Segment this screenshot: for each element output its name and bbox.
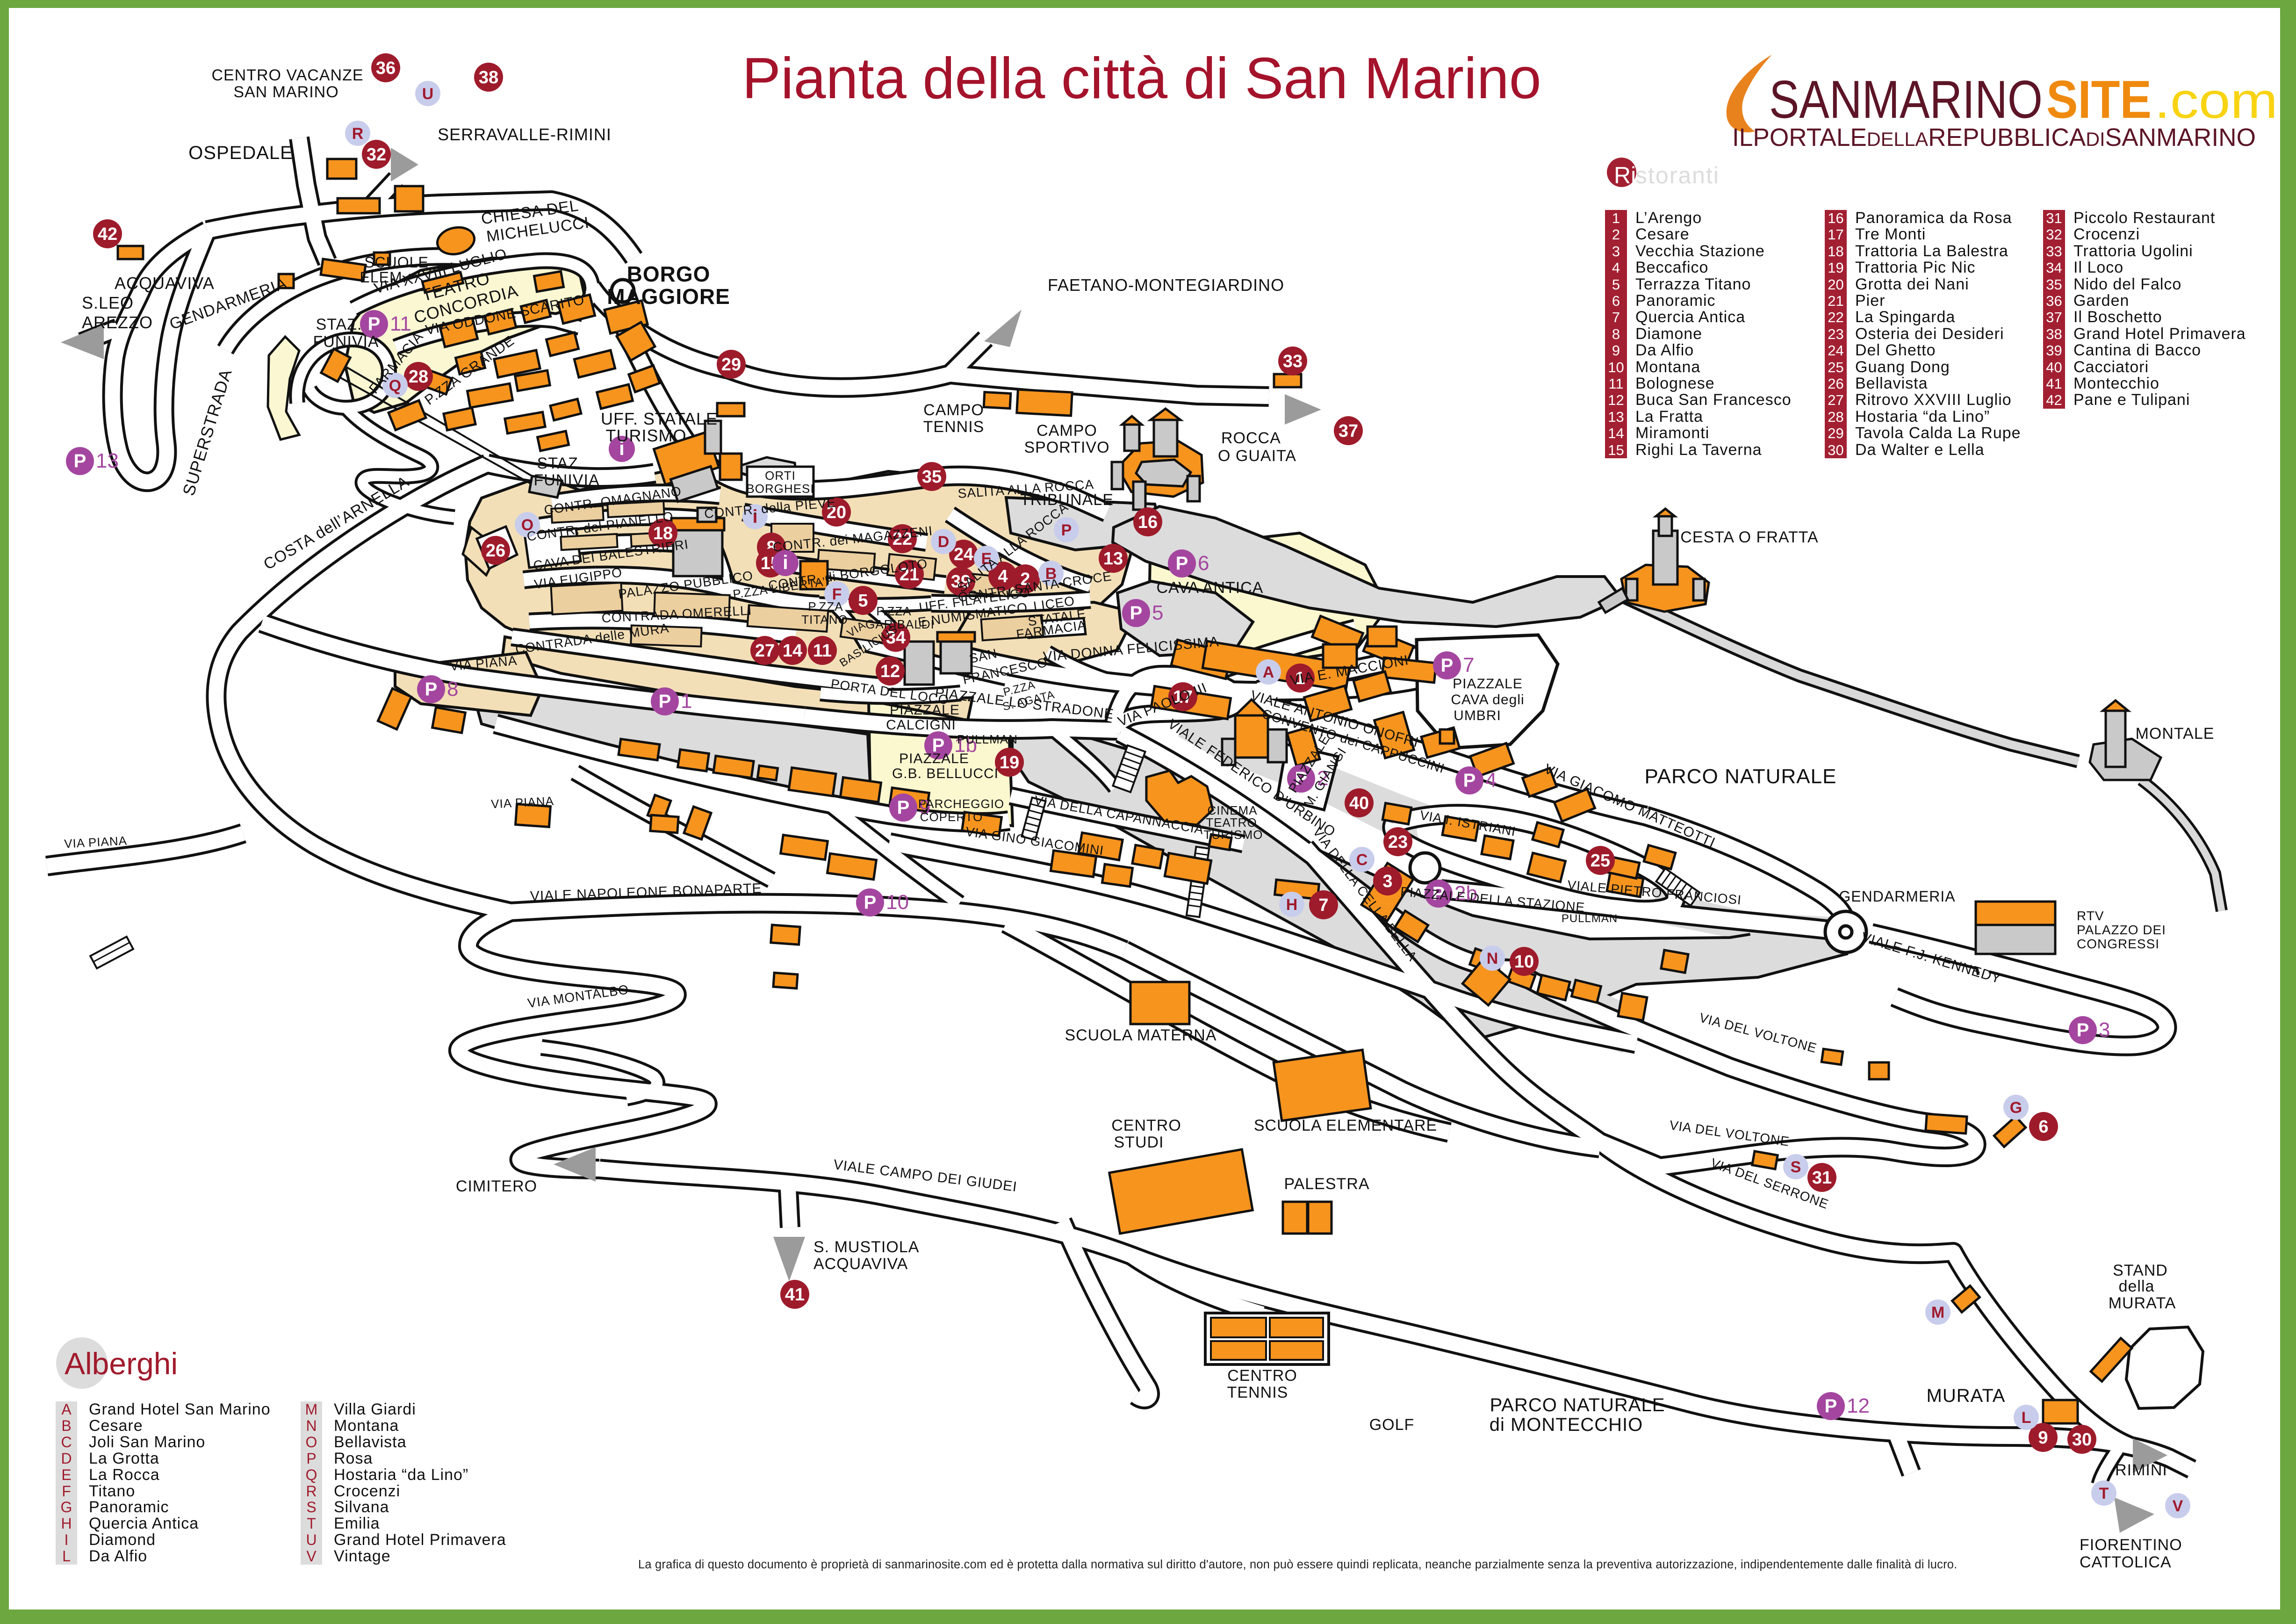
svg-text:SCUOLA MATERNA: SCUOLA MATERNA bbox=[1065, 1026, 1216, 1044]
svg-text:della: della bbox=[2119, 1278, 2155, 1295]
svg-text:G.B. BELLUCCI: G.B. BELLUCCI bbox=[892, 766, 999, 781]
svg-text:3: 3 bbox=[1382, 872, 1392, 891]
svg-text:14: 14 bbox=[783, 641, 802, 661]
svg-text:SCUOLA ELEMENTARE: SCUOLA ELEMENTARE bbox=[1254, 1117, 1437, 1134]
svg-text:A: A bbox=[1263, 664, 1274, 681]
svg-text:di MONTECCHIO: di MONTECCHIO bbox=[1490, 1415, 1643, 1435]
svg-text:37: 37 bbox=[1339, 421, 1358, 441]
svg-text:12: 12 bbox=[880, 662, 900, 681]
svg-text:P: P bbox=[897, 797, 910, 818]
svg-text:25: 25 bbox=[1591, 851, 1610, 871]
svg-text:6: 6 bbox=[2038, 1117, 2048, 1137]
svg-text:ROCCA: ROCCA bbox=[1221, 429, 1281, 447]
svg-text:P: P bbox=[1463, 770, 1476, 791]
svg-text:PARCHEGGIO: PARCHEGGIO bbox=[918, 797, 1004, 811]
svg-text:13: 13 bbox=[96, 449, 119, 472]
svg-text:FAETANO-MONTEGIARDINO: FAETANO-MONTEGIARDINO bbox=[1048, 275, 1284, 295]
svg-text:SUPERSTRADA: SUPERSTRADA bbox=[179, 367, 235, 498]
svg-text:T: T bbox=[2099, 1485, 2109, 1502]
svg-text:24: 24 bbox=[954, 545, 973, 564]
svg-text:PULLMAN: PULLMAN bbox=[1562, 912, 1618, 925]
svg-text:R: R bbox=[352, 125, 364, 143]
svg-text:STAND: STAND bbox=[2113, 1262, 2168, 1279]
svg-text:RTV: RTV bbox=[2077, 909, 2104, 923]
svg-text:27: 27 bbox=[755, 641, 775, 661]
svg-text:OSPEDALE: OSPEDALE bbox=[188, 143, 293, 163]
svg-text:PIAZZALE: PIAZZALE bbox=[890, 702, 960, 718]
svg-text:P: P bbox=[1130, 603, 1143, 623]
svg-text:PULLMAN: PULLMAN bbox=[957, 732, 1018, 746]
svg-text:VIA DEL VOLTONE: VIA DEL VOLTONE bbox=[1698, 1010, 1818, 1055]
svg-text:P: P bbox=[74, 451, 86, 471]
svg-text:7: 7 bbox=[1318, 895, 1328, 915]
svg-text:P: P bbox=[368, 314, 381, 334]
svg-text:S. MUSTIOLA: S. MUSTIOLA bbox=[813, 1238, 919, 1256]
svg-text:P: P bbox=[864, 892, 877, 913]
svg-text:33: 33 bbox=[1283, 352, 1303, 371]
svg-text:13: 13 bbox=[1103, 549, 1123, 569]
svg-text:O GUAITA: O GUAITA bbox=[1218, 447, 1296, 465]
svg-text:ORTI: ORTI bbox=[765, 469, 796, 483]
svg-text:P.ZZA: P.ZZA bbox=[876, 604, 911, 618]
svg-text:H: H bbox=[1286, 896, 1298, 914]
svg-text:ACQUAVIVA: ACQUAVIVA bbox=[813, 1255, 908, 1273]
svg-text:12: 12 bbox=[1847, 1394, 1870, 1417]
svg-text:SANMARINO: SANMARINO bbox=[1769, 70, 2043, 130]
svg-text:TENNIS: TENNIS bbox=[923, 418, 985, 436]
svg-text:MURATA: MURATA bbox=[2109, 1294, 2176, 1312]
svg-text:TURISMO: TURISMO bbox=[606, 426, 687, 445]
svg-text:10: 10 bbox=[886, 891, 909, 914]
svg-text:.com: .com bbox=[2154, 72, 2278, 129]
svg-text:5: 5 bbox=[858, 591, 868, 611]
svg-text:31: 31 bbox=[1812, 1168, 1832, 1188]
svg-text:V: V bbox=[2173, 1497, 2183, 1515]
svg-text:D: D bbox=[938, 533, 950, 551]
svg-text:UFF. STATALE: UFF. STATALE bbox=[601, 409, 718, 428]
svg-text:P: P bbox=[425, 679, 438, 700]
svg-text:PALESTRA: PALESTRA bbox=[1284, 1175, 1369, 1193]
svg-text:SERRAVALLE-RIMINI: SERRAVALLE-RIMINI bbox=[438, 125, 612, 144]
svg-text:P.ZZA: P.ZZA bbox=[808, 599, 843, 614]
svg-text:P: P bbox=[659, 691, 671, 712]
svg-text:ILPORTALEDELLAREPUBBLICADISANM: ILPORTALEDELLAREPUBBLICADISANMARINO bbox=[1732, 123, 2256, 152]
svg-text:TURISMO: TURISMO bbox=[1204, 828, 1263, 842]
svg-text:RIMINI: RIMINI bbox=[2115, 1461, 2167, 1479]
svg-text:35: 35 bbox=[922, 467, 942, 487]
svg-text:AREZZO: AREZZO bbox=[82, 313, 153, 332]
svg-text:UMBRI: UMBRI bbox=[1454, 708, 1501, 723]
svg-text:VIA DEL VOLTONE: VIA DEL VOLTONE bbox=[1669, 1118, 1791, 1149]
svg-text:10: 10 bbox=[1514, 952, 1534, 972]
svg-text:P: P bbox=[1061, 521, 1072, 539]
svg-text:PIAZZALE: PIAZZALE bbox=[1453, 676, 1523, 692]
svg-text:N: N bbox=[1487, 950, 1498, 967]
svg-text:SITE: SITE bbox=[2046, 70, 2152, 130]
svg-text:11: 11 bbox=[813, 641, 832, 661]
svg-text:S: S bbox=[1791, 1158, 1801, 1176]
svg-text:GARIBALDI: GARIBALDI bbox=[865, 617, 935, 631]
svg-text:6: 6 bbox=[1198, 552, 1209, 575]
svg-text:P: P bbox=[1825, 1396, 1837, 1416]
svg-text:CAMPO: CAMPO bbox=[1036, 422, 1097, 440]
svg-text:SPORTIVO: SPORTIVO bbox=[1024, 439, 1109, 456]
svg-text:4: 4 bbox=[1485, 769, 1497, 792]
svg-text:38: 38 bbox=[479, 68, 498, 87]
svg-text:PARCO NATURALE: PARCO NATURALE bbox=[1645, 765, 1837, 788]
svg-text:28: 28 bbox=[409, 367, 428, 387]
svg-text:PIAZZALE: PIAZZALE bbox=[899, 751, 969, 766]
svg-text:C: C bbox=[1356, 851, 1368, 869]
svg-text:CENTRO: CENTRO bbox=[1227, 1367, 1297, 1385]
svg-text:STAZ.: STAZ. bbox=[537, 455, 583, 472]
svg-text:U: U bbox=[422, 85, 434, 103]
svg-text:M: M bbox=[1931, 1304, 1944, 1321]
svg-text:TITANO: TITANO bbox=[801, 613, 848, 627]
svg-text:30: 30 bbox=[2072, 1430, 2092, 1450]
svg-text:GENDARMERIA: GENDARMERIA bbox=[1839, 888, 1955, 905]
svg-text:COPERTO: COPERTO bbox=[920, 810, 983, 824]
svg-text:P: P bbox=[1441, 655, 1454, 676]
svg-text:5: 5 bbox=[1152, 601, 1163, 624]
svg-text:BORGHESI: BORGHESI bbox=[746, 482, 814, 496]
svg-text:FUNIVIA: FUNIVIA bbox=[533, 471, 599, 489]
svg-text:CENTRO VACANZE: CENTRO VACANZE bbox=[211, 66, 363, 84]
svg-text:S.LEO: S.LEO bbox=[82, 293, 134, 312]
svg-text:BORGO: BORGO bbox=[627, 262, 711, 286]
svg-text:FIORENTINO: FIORENTINO bbox=[2080, 1536, 2182, 1554]
svg-text:CATTOLICA: CATTOLICA bbox=[2080, 1553, 2172, 1571]
svg-text:P: P bbox=[1176, 553, 1188, 574]
svg-text:29: 29 bbox=[721, 355, 741, 375]
svg-text:MAGGIORE: MAGGIORE bbox=[607, 284, 730, 309]
svg-text:3: 3 bbox=[2099, 1018, 2110, 1041]
svg-text:PARCO NATURALE: PARCO NATURALE bbox=[1490, 1395, 1665, 1415]
svg-text:7: 7 bbox=[1463, 654, 1474, 677]
svg-text:32: 32 bbox=[367, 145, 386, 165]
svg-text:ACQUAVIVA: ACQUAVIVA bbox=[115, 274, 215, 293]
svg-text:PALAZZO DEI: PALAZZO DEI bbox=[2077, 923, 2166, 937]
svg-text:26: 26 bbox=[486, 541, 505, 561]
svg-text:MONTALE: MONTALE bbox=[2136, 725, 2215, 743]
svg-text:CONGRESSI: CONGRESSI bbox=[2077, 937, 2159, 951]
svg-text:STUDI: STUDI bbox=[1114, 1133, 1164, 1151]
svg-text:CENTRO: CENTRO bbox=[1111, 1117, 1181, 1134]
svg-text:STAZ.: STAZ. bbox=[316, 316, 362, 333]
svg-text:SAN MARINO: SAN MARINO bbox=[233, 83, 338, 101]
svg-text:CAMPO: CAMPO bbox=[923, 401, 984, 419]
svg-text:16: 16 bbox=[1138, 512, 1158, 532]
svg-text:9: 9 bbox=[2038, 1428, 2048, 1448]
svg-text:FUNIVIA: FUNIVIA bbox=[313, 333, 379, 351]
svg-text:L: L bbox=[2022, 1409, 2031, 1427]
svg-text:8: 8 bbox=[447, 678, 458, 700]
svg-text:41: 41 bbox=[785, 1285, 805, 1305]
svg-text:P: P bbox=[2077, 1020, 2089, 1040]
svg-text:11: 11 bbox=[390, 312, 411, 335]
svg-text:1: 1 bbox=[681, 690, 692, 713]
svg-text:CAVA degli: CAVA degli bbox=[1451, 692, 1524, 707]
svg-text:CIMITERO: CIMITERO bbox=[456, 1177, 537, 1195]
svg-text:40: 40 bbox=[1349, 794, 1369, 813]
svg-text:i: i bbox=[783, 551, 788, 573]
svg-text:TENNIS: TENNIS bbox=[1227, 1384, 1288, 1401]
svg-text:G: G bbox=[2010, 1099, 2022, 1117]
svg-text:CALCIGNI: CALCIGNI bbox=[886, 717, 956, 733]
svg-text:CESTA O FRATTA: CESTA O FRATTA bbox=[1680, 528, 1818, 546]
svg-text:CAVA ANTICA: CAVA ANTICA bbox=[1157, 579, 1264, 597]
svg-text:23: 23 bbox=[1388, 832, 1408, 852]
svg-text:19: 19 bbox=[1000, 753, 1019, 772]
svg-text:36: 36 bbox=[376, 58, 396, 78]
svg-text:42: 42 bbox=[98, 224, 117, 244]
svg-text:MURATA: MURATA bbox=[1927, 1386, 2006, 1406]
svg-text:GOLF: GOLF bbox=[1369, 1416, 1415, 1434]
